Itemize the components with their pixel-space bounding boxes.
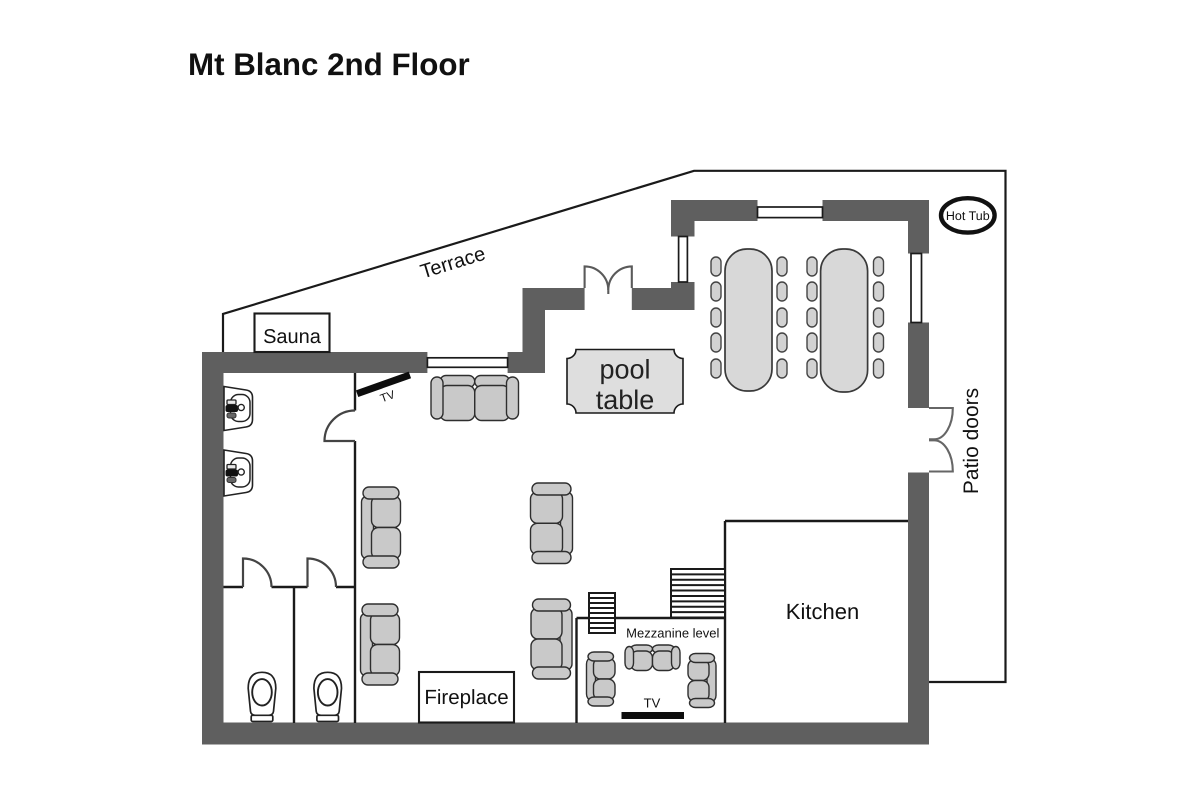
svg-text:Fireplace: Fireplace [424,686,508,709]
svg-text:Patio doors: Patio doors [960,388,983,494]
svg-text:Mt Blanc 2nd Floor: Mt Blanc 2nd Floor [188,47,470,82]
svg-text:TV: TV [379,389,397,405]
svg-text:pool: pool [599,354,650,384]
svg-text:Mezzanine level: Mezzanine level [626,625,719,640]
svg-text:Sauna: Sauna [263,326,322,348]
svg-text:table: table [596,385,655,415]
svg-text:Hot Tub: Hot Tub [946,209,990,223]
svg-text:Kitchen: Kitchen [786,599,859,624]
svg-text:Terrace: Terrace [418,243,488,284]
svg-text:TV: TV [644,695,661,710]
